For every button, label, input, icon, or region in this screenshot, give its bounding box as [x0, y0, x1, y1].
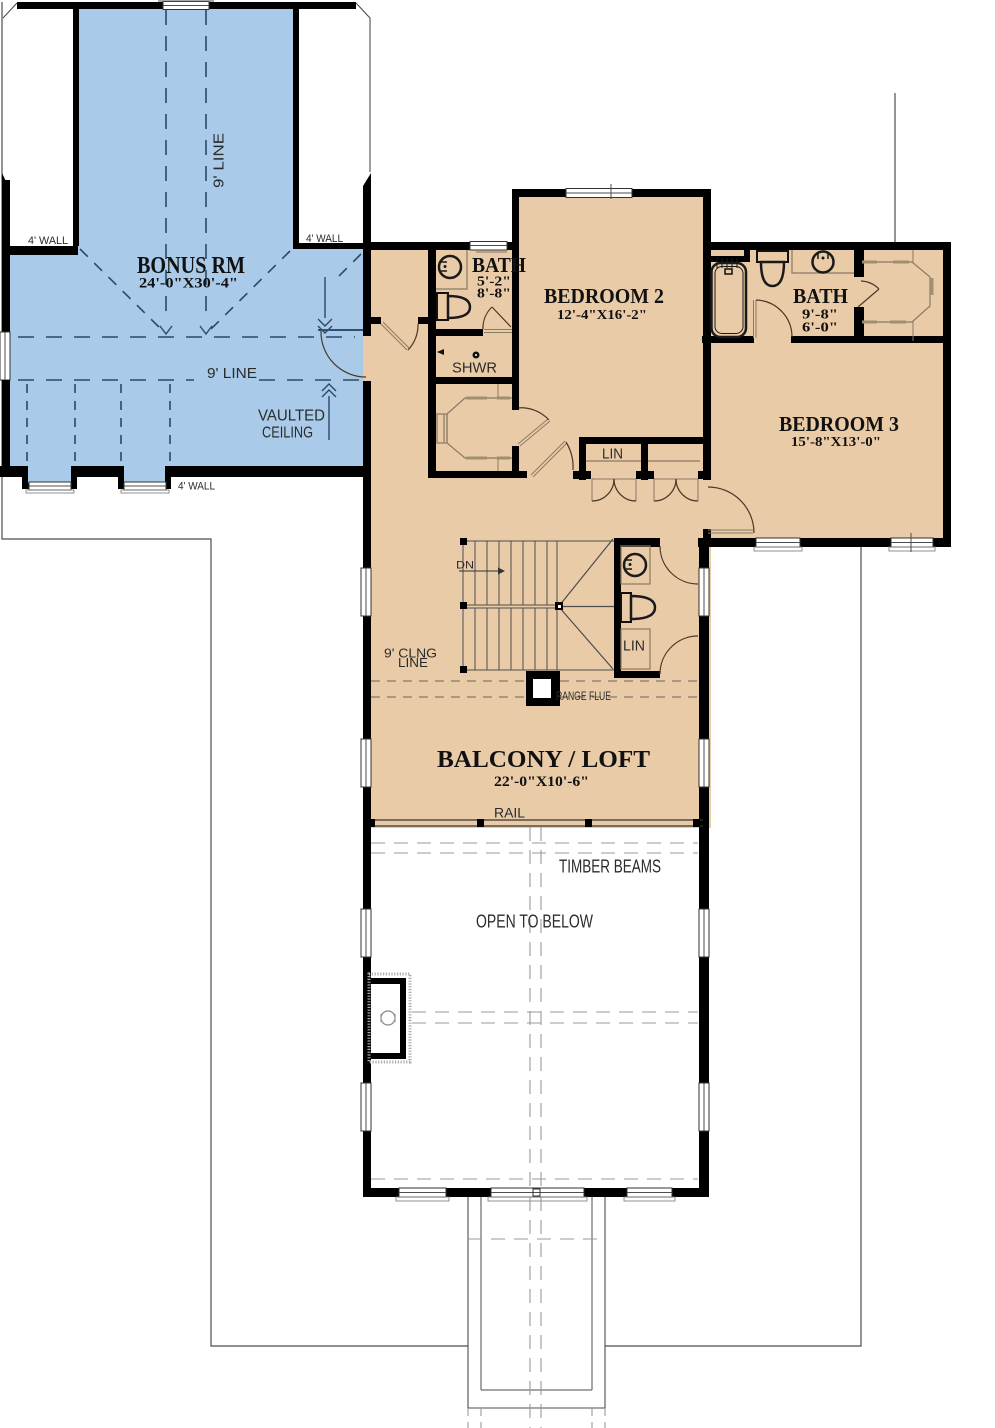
svg-text:BATH: BATH [793, 284, 848, 308]
svg-text:DN: DN [456, 560, 474, 572]
svg-text:RAIL: RAIL [494, 805, 525, 821]
svg-text:BALCONY / LOFT: BALCONY / LOFT [437, 747, 650, 773]
svg-text:LIN: LIN [602, 446, 623, 463]
svg-text:22'-0"X10'-6": 22'-0"X10'-6" [494, 774, 589, 790]
svg-text:SHWR: SHWR [452, 360, 497, 377]
svg-text:BEDROOM 2: BEDROOM 2 [544, 284, 664, 308]
svg-text:4' WALL: 4' WALL [28, 235, 68, 247]
svg-text:TIMBER BEAMS: TIMBER BEAMS [559, 857, 661, 877]
svg-text:BEDROOM 3: BEDROOM 3 [779, 412, 899, 436]
svg-text:LINE: LINE [398, 656, 428, 670]
svg-text:6'-0": 6'-0" [802, 321, 838, 336]
svg-text:24'-0"X30'-4": 24'-0"X30'-4" [139, 276, 238, 292]
svg-text:BATH: BATH [472, 253, 526, 277]
svg-text:9' LINE: 9' LINE [207, 365, 257, 382]
svg-text:4' WALL: 4' WALL [306, 233, 343, 245]
svg-text:RANGE FLUE: RANGE FLUE [556, 691, 611, 703]
svg-text:LIN: LIN [623, 638, 645, 655]
svg-text:VAULTED: VAULTED [258, 408, 325, 425]
svg-text:CEILING: CEILING [262, 425, 313, 442]
svg-text:4' WALL: 4' WALL [178, 481, 215, 493]
svg-text:15'-8"X13'-0": 15'-8"X13'-0" [791, 435, 881, 450]
svg-text:9' LINE: 9' LINE [211, 133, 228, 188]
svg-text:12'-4"X16'-2": 12'-4"X16'-2" [557, 308, 647, 323]
svg-text:8'-8": 8'-8" [477, 287, 511, 302]
svg-text:OPEN TO BELOW: OPEN TO BELOW [476, 912, 593, 932]
